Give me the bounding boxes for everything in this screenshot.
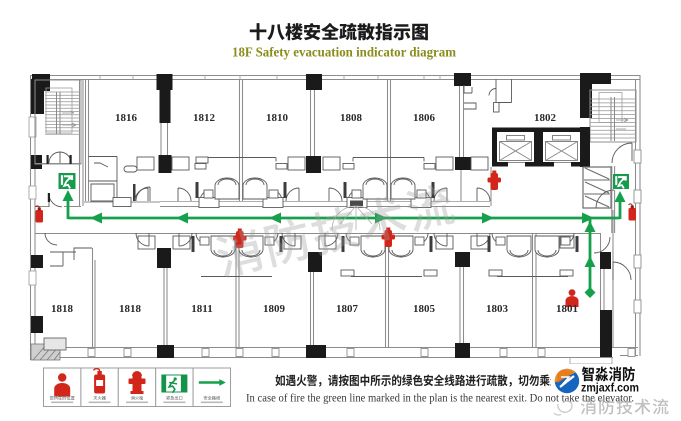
svg-text:1803: 1803 (486, 303, 509, 315)
svg-text:1810: 1810 (266, 112, 289, 124)
svg-text:1806: 1806 (413, 112, 436, 124)
svg-text:zmjaxf.com: zmjaxf.com (581, 383, 639, 395)
svg-text:1818: 1818 (119, 303, 142, 315)
svg-text:1801: 1801 (556, 303, 578, 315)
svg-text:1808: 1808 (340, 112, 363, 124)
svg-text:1812: 1812 (193, 112, 216, 124)
svg-text:1805: 1805 (413, 303, 436, 315)
svg-text:1802: 1802 (534, 112, 557, 124)
svg-text:18F Safety evacuation indicato: 18F Safety evacuation indicator diagram (232, 46, 456, 61)
svg-text:1816: 1816 (115, 112, 138, 124)
svg-text:1818: 1818 (51, 303, 74, 315)
svg-text:1811: 1811 (191, 303, 212, 315)
svg-text:1809: 1809 (263, 303, 286, 315)
svg-text:1807: 1807 (336, 303, 359, 315)
